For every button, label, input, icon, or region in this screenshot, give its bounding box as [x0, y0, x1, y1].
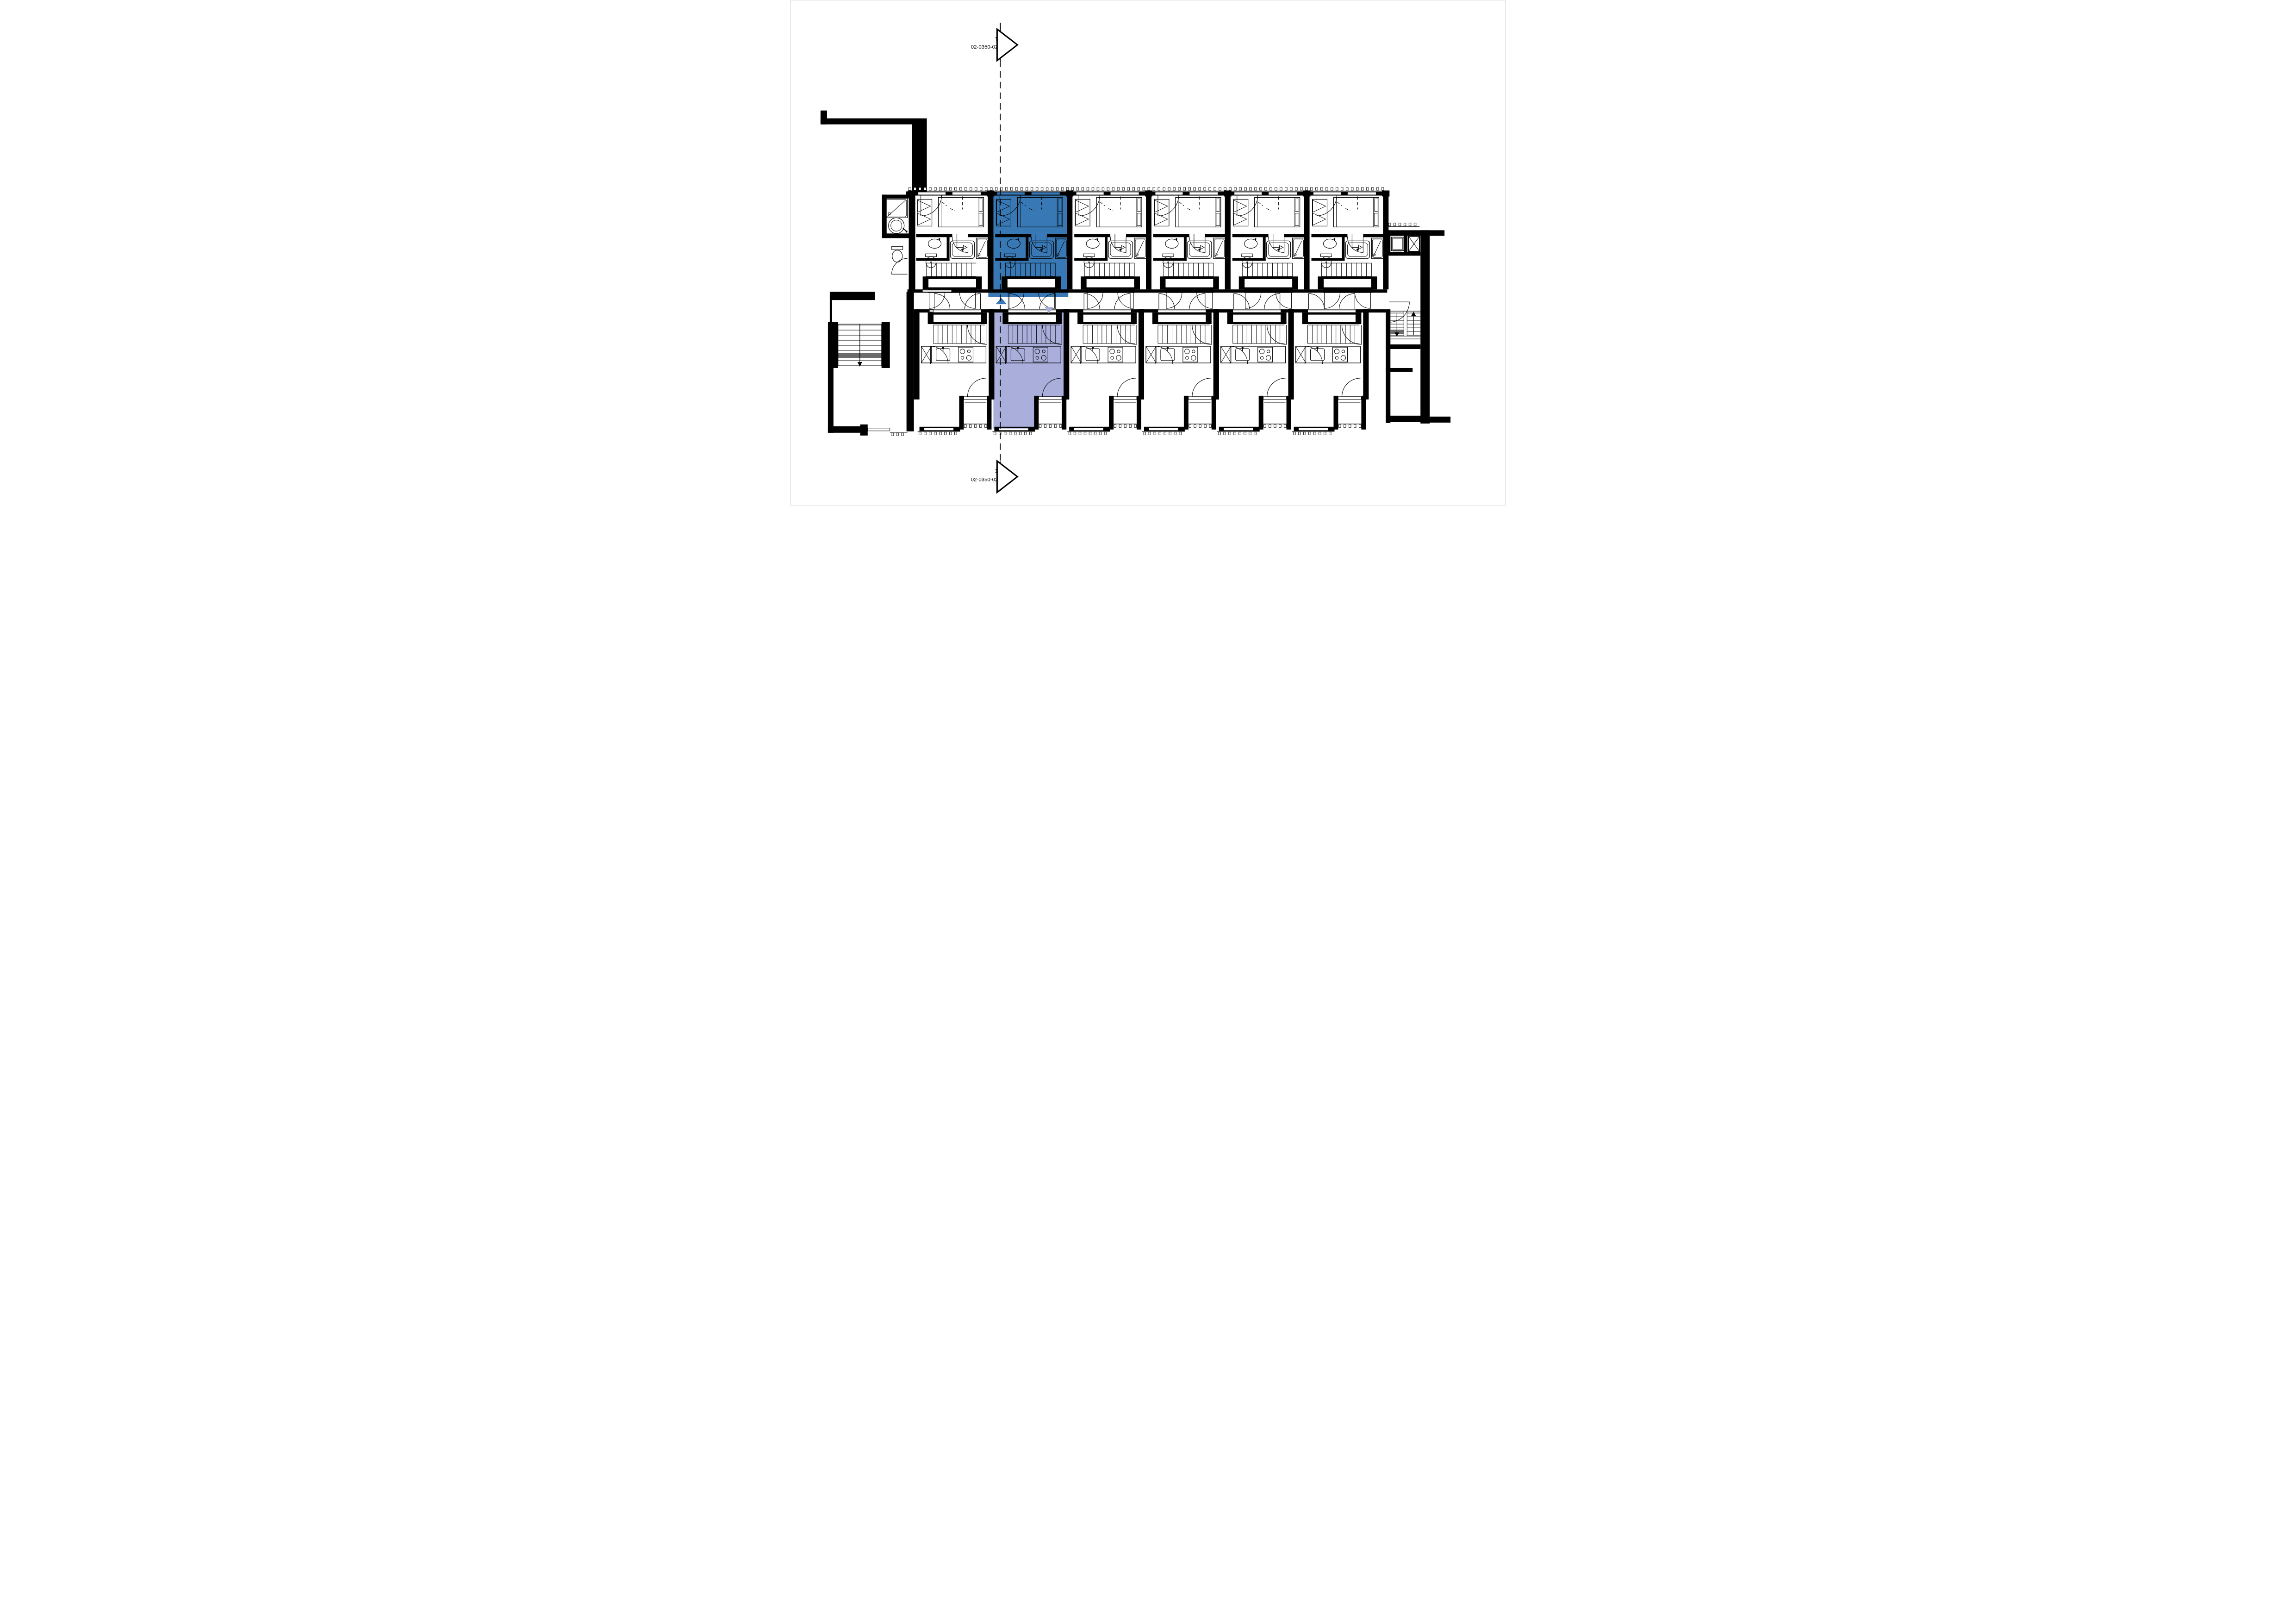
lower-unit-5	[1213, 294, 1294, 435]
section-number-bottom: 1	[995, 468, 998, 475]
corridor	[908, 289, 1388, 312]
section-marker-top: 1 02-0350-02	[971, 36, 998, 50]
walls	[907, 292, 914, 431]
lower-unit-4	[1139, 294, 1219, 435]
lower-unit-3	[1064, 294, 1144, 435]
section-number-top: 1	[995, 36, 998, 43]
top-left-wall	[821, 111, 927, 195]
left-wing-stair	[828, 322, 908, 436]
right-wing	[1386, 223, 1450, 424]
lower-unit-6	[1288, 294, 1369, 435]
drawing-page: 1 02-0350-02 1 02-0350-02	[790, 0, 1506, 506]
section-reference-top: 02-0350-02	[971, 44, 998, 50]
upper-end-bathroom	[830, 191, 915, 322]
section-marker-bottom: 1 02-0350-02	[971, 468, 998, 483]
section-reference-bottom: 02-0350-02	[971, 477, 998, 483]
lower-unit-1	[914, 294, 995, 435]
highlight-lower-unit	[993, 312, 1068, 429]
floor-plan: 1 02-0350-02 1 02-0350-02	[791, 0, 1505, 506]
arrow-up	[996, 298, 1007, 304]
plan-linework	[821, 23, 1450, 493]
